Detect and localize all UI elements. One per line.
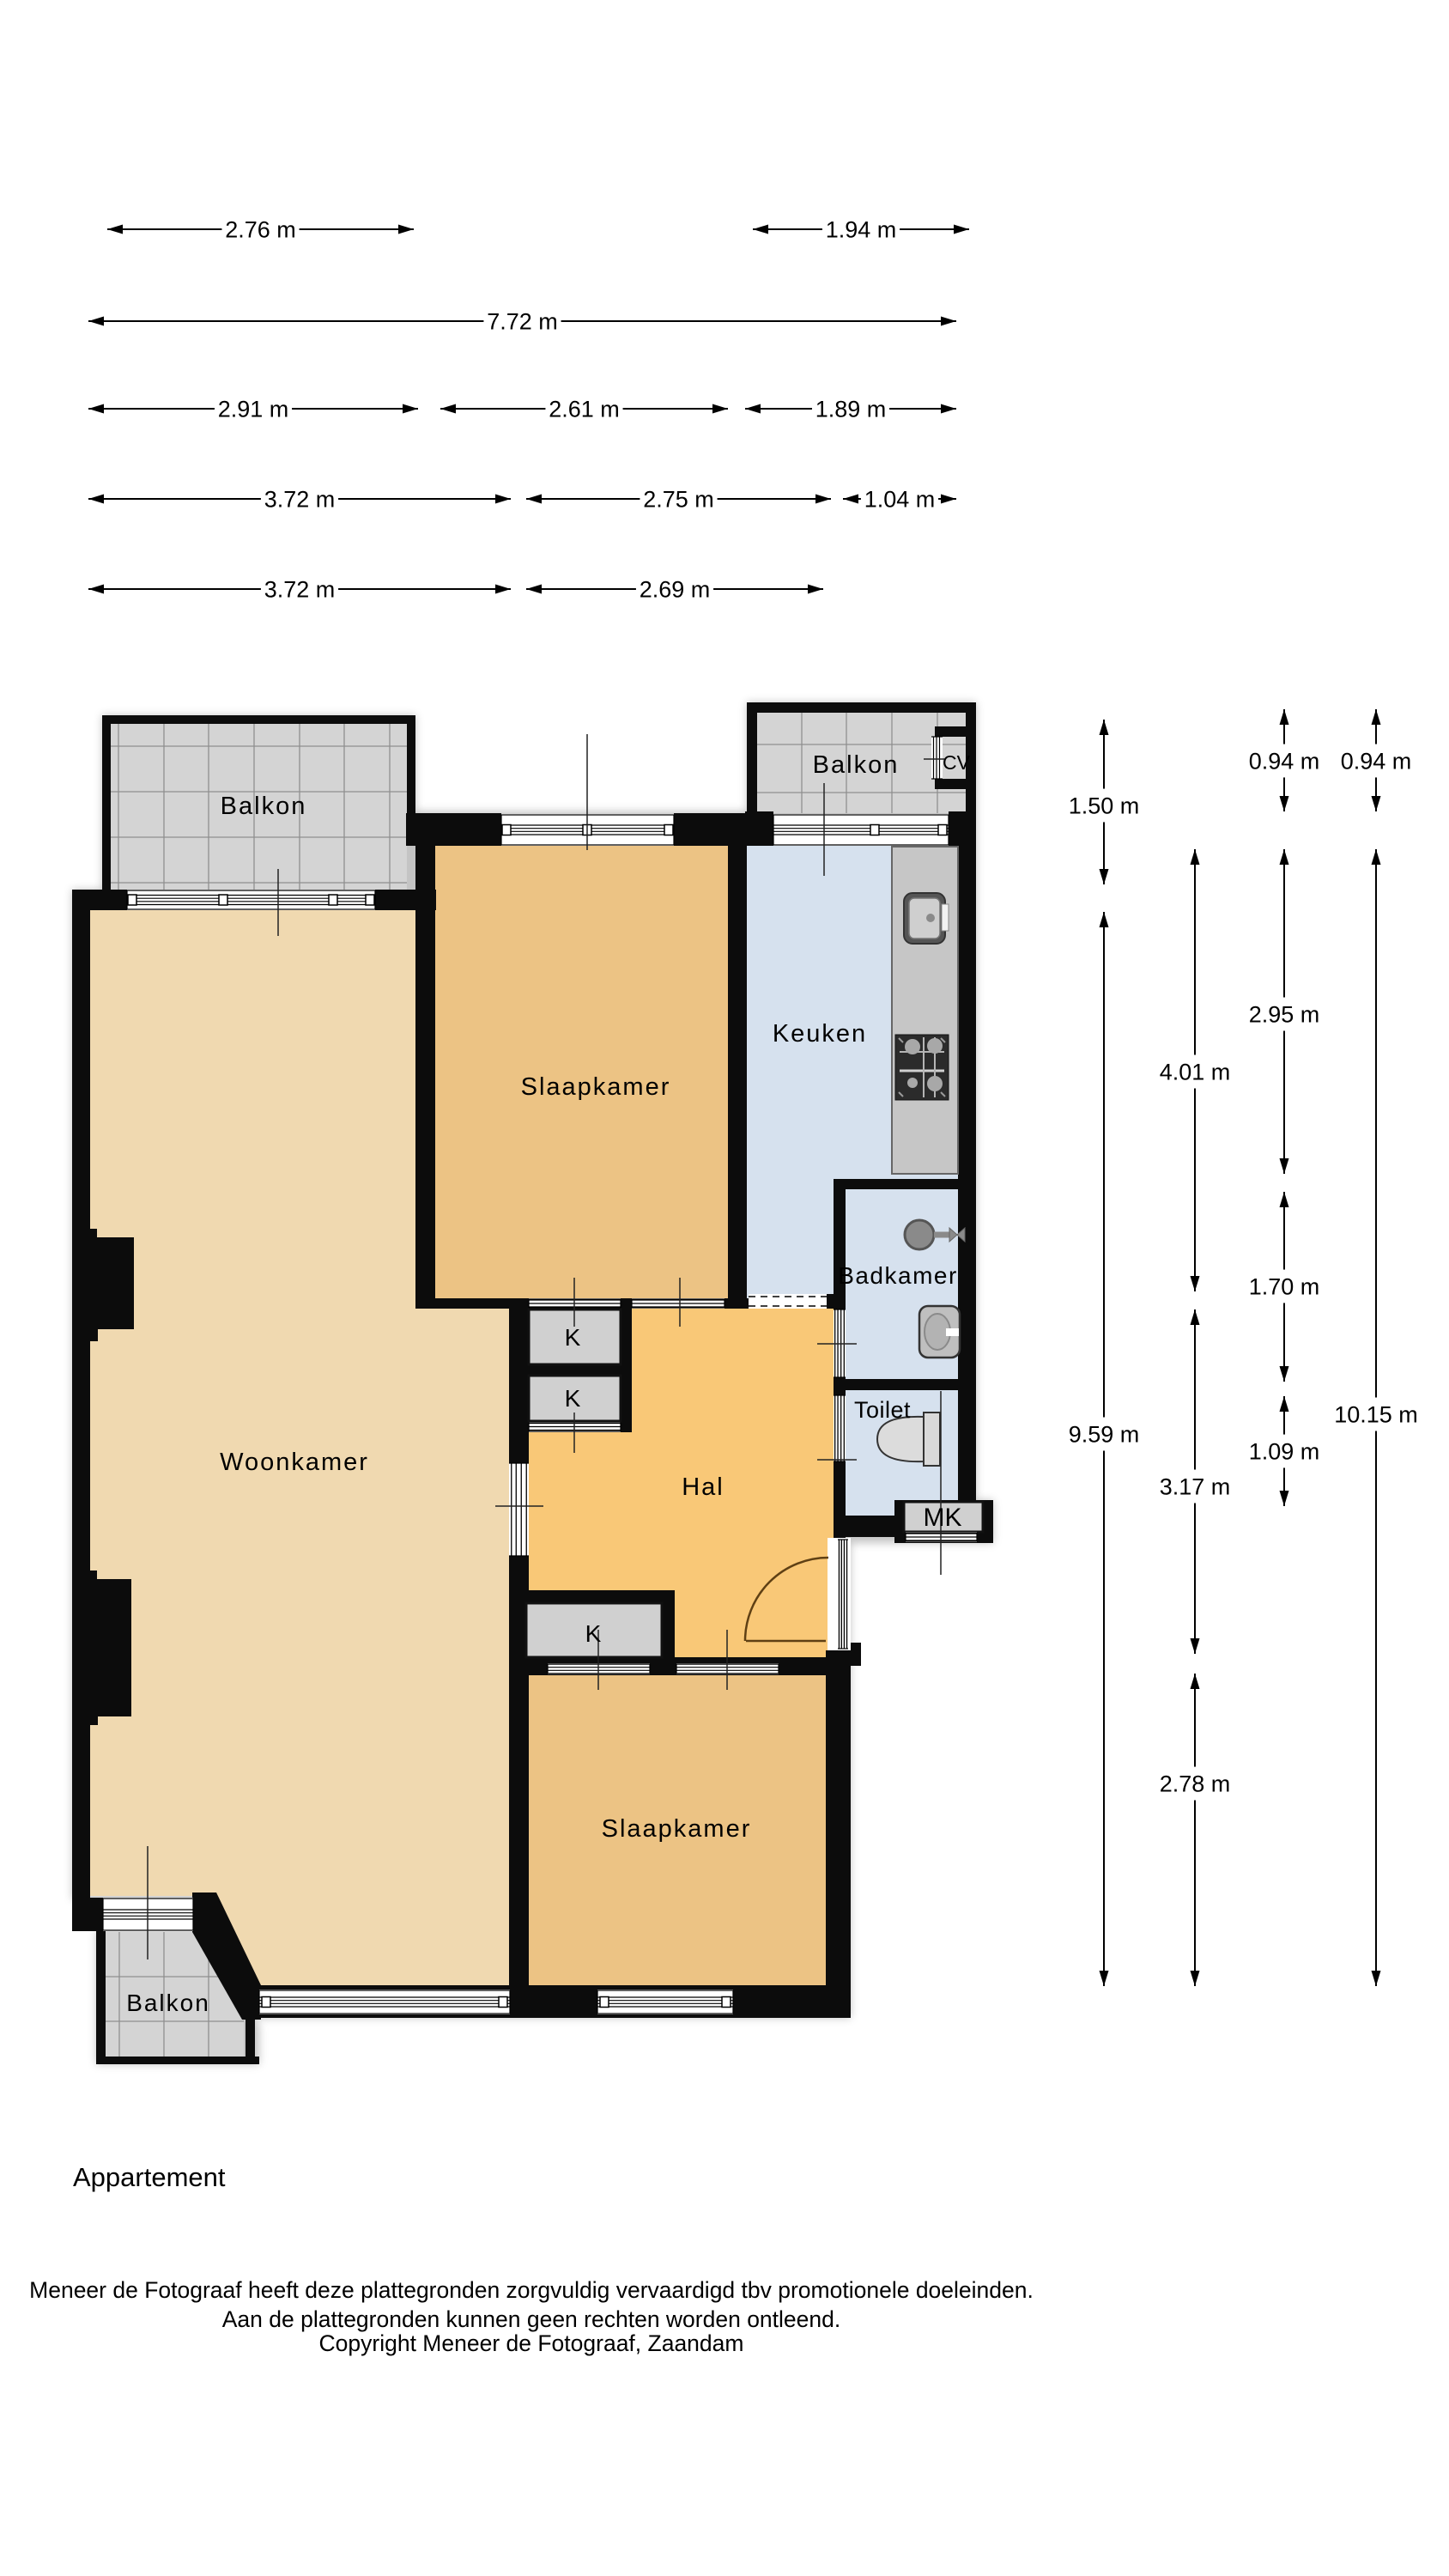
svg-text:3.72 m: 3.72 m <box>264 487 336 513</box>
svg-text:Balkon: Balkon <box>813 751 900 779</box>
svg-text:3.72 m: 3.72 m <box>264 577 336 603</box>
svg-text:1.70 m: 1.70 m <box>1249 1274 1320 1300</box>
svg-text:0.94 m: 0.94 m <box>1249 749 1320 775</box>
svg-text:Hal: Hal <box>682 1473 724 1501</box>
svg-text:Balkon: Balkon <box>126 1990 210 2016</box>
svg-text:Toilet: Toilet <box>854 1397 911 1423</box>
svg-text:2.95 m: 2.95 m <box>1249 1002 1320 1028</box>
svg-text:2.91 m: 2.91 m <box>218 397 289 422</box>
svg-text:CV: CV <box>943 751 971 774</box>
svg-text:Woonkamer: Woonkamer <box>220 1449 369 1476</box>
svg-text:Aan de plattegronden kunnen ge: Aan de plattegronden kunnen geen rechten… <box>222 2306 840 2332</box>
svg-text:K: K <box>585 1620 602 1647</box>
svg-text:Copyright Meneer de Fotograaf,: Copyright Meneer de Fotograaf, Zaandam <box>319 2330 744 2356</box>
svg-text:Slaapkamer: Slaapkamer <box>521 1073 671 1101</box>
svg-text:Appartement: Appartement <box>73 2162 226 2192</box>
svg-text:1.94 m: 1.94 m <box>826 217 897 243</box>
svg-text:Badkamer: Badkamer <box>838 1262 958 1289</box>
svg-text:9.59 m: 9.59 m <box>1069 1422 1140 1448</box>
svg-text:2.61 m: 2.61 m <box>549 397 620 422</box>
svg-text:0.94 m: 0.94 m <box>1341 749 1412 775</box>
svg-text:K: K <box>565 1324 581 1351</box>
svg-text:2.78 m: 2.78 m <box>1160 1771 1231 1797</box>
svg-text:Meneer de Fotograaf heeft deze: Meneer de Fotograaf heeft deze plattegro… <box>29 2277 1034 2303</box>
svg-text:2.75 m: 2.75 m <box>643 487 714 513</box>
svg-text:Slaapkamer: Slaapkamer <box>602 1815 752 1843</box>
svg-text:10.15 m: 10.15 m <box>1334 1402 1418 1428</box>
svg-text:3.17 m: 3.17 m <box>1160 1474 1231 1500</box>
svg-text:1.04 m: 1.04 m <box>864 487 936 513</box>
svg-text:1.89 m: 1.89 m <box>815 397 887 422</box>
svg-text:4.01 m: 4.01 m <box>1160 1060 1231 1085</box>
svg-text:2.76 m: 2.76 m <box>225 217 296 243</box>
svg-text:2.69 m: 2.69 m <box>640 577 711 603</box>
svg-text:1.50 m: 1.50 m <box>1069 793 1140 819</box>
svg-text:7.72 m: 7.72 m <box>487 309 558 335</box>
svg-text:Balkon: Balkon <box>221 793 307 820</box>
svg-text:MK: MK <box>924 1504 962 1532</box>
svg-text:K: K <box>565 1385 581 1412</box>
svg-text:1.09 m: 1.09 m <box>1249 1439 1320 1465</box>
svg-text:Keuken: Keuken <box>773 1020 867 1048</box>
